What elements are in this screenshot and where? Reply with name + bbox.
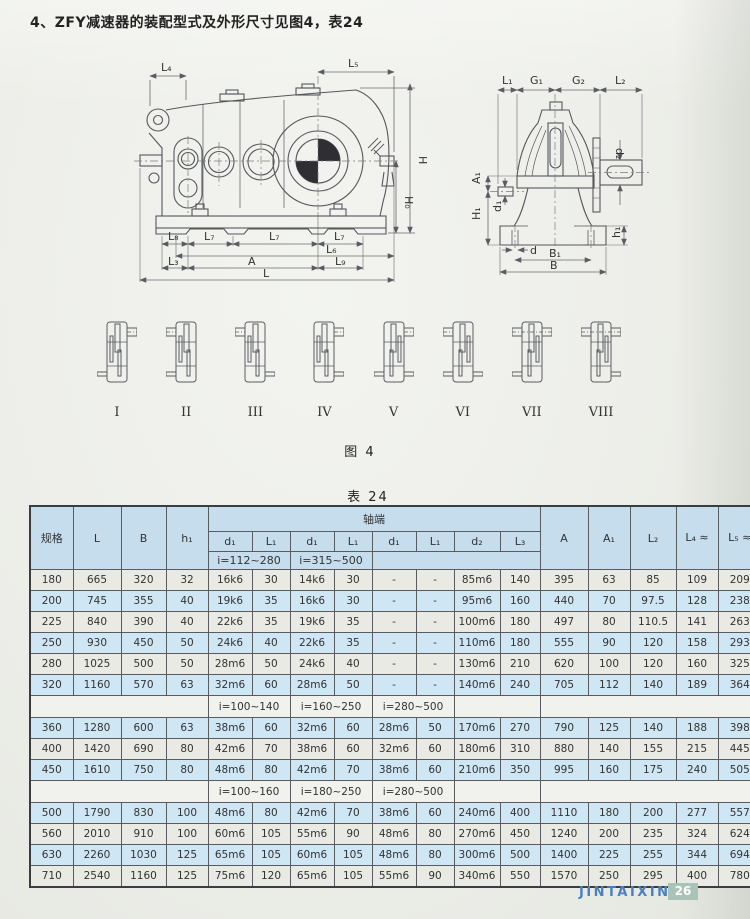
assembly-type-1-diagram — [97, 320, 137, 392]
page-title: 4、ZFY减速器的装配型式及外形尺寸见图4，表24 — [30, 12, 363, 32]
table-cell: 70 — [334, 760, 372, 781]
col-header-L1a: L₁ — [252, 532, 290, 552]
assembly-type-3-diagram — [235, 320, 275, 392]
table-cell: 120 — [252, 866, 290, 888]
assembly-type-5-diagram — [374, 320, 414, 392]
table-cell: 235 — [630, 824, 676, 845]
table-cell: 30 — [334, 591, 372, 612]
table-cell: 690 — [121, 739, 166, 760]
col-header-shaft-end: 轴端 — [208, 506, 540, 532]
table-cell: - — [372, 612, 416, 633]
table-cell: 180 — [500, 612, 540, 633]
i-range-label: i=180~250 — [290, 781, 372, 803]
table-cell: 42m6 — [290, 803, 334, 824]
col-header-spec: 规格 — [30, 506, 73, 570]
table-row: 2007453554019k63516k630--95m61604407097.… — [30, 591, 750, 612]
dim-label-L5: L₅ — [348, 57, 359, 70]
table-cell: 250 — [30, 633, 73, 654]
table-cell: 910 — [121, 824, 166, 845]
table-row: 7102540116012575m612065m610555m690340m65… — [30, 866, 750, 888]
table-cell: 155 — [630, 739, 676, 760]
table-cell: 705 — [540, 675, 588, 696]
table-row: 45016107508048m68042m67038m660210m635099… — [30, 760, 750, 781]
table-cell: 270m6 — [454, 824, 500, 845]
table-cell: 1790 — [73, 803, 121, 824]
table-cell: 277 — [676, 803, 718, 824]
table-cell: 1160 — [121, 866, 166, 888]
side-view-drawing: L₄ L₅ H H₀ L₈ L₇ L₇ L₇ L₆ L₃ A L₉ L — [128, 56, 454, 298]
table-cell: - — [372, 591, 416, 612]
i-range-header-blank — [372, 552, 540, 570]
table-cell: 240 — [676, 760, 718, 781]
table-cell: 95m6 — [454, 591, 500, 612]
table-cell: 38m6 — [372, 803, 416, 824]
table-row: 560201091010060m610555m69048m680270m6450… — [30, 824, 750, 845]
table-cell: 210m6 — [454, 760, 500, 781]
table-cell: 100m6 — [454, 612, 500, 633]
i-range-label: i=100~160 — [208, 781, 290, 803]
table-cell: 344 — [676, 845, 718, 866]
table-cell: 745 — [73, 591, 121, 612]
table-cell: 180 — [30, 570, 73, 591]
table-cell: 16k6 — [290, 591, 334, 612]
assembly-type-1: I — [95, 320, 139, 420]
table-cell: 255 — [630, 845, 676, 866]
table-cell: - — [372, 633, 416, 654]
figure-caption: 图 4 — [320, 441, 400, 460]
table-cell: 790 — [540, 718, 588, 739]
table-cell: 364 — [718, 675, 750, 696]
table-cell: 200 — [30, 591, 73, 612]
table-body: 1806653203216k63014k630--85m614039563851… — [30, 570, 750, 888]
table-cell: 60 — [252, 718, 290, 739]
dim-label-h1: h₁ — [610, 227, 623, 238]
table-cell: 160 — [676, 654, 718, 675]
table-cell: 97.5 — [630, 591, 676, 612]
end-view-drawing: L₁ G₁ G₂ L₂ d₂ A₁ H₁ d₁ h₁ d B₁ B — [468, 60, 744, 298]
table-cell: 355 — [121, 591, 166, 612]
table-cell: 38m6 — [290, 739, 334, 760]
table-cell: 400 — [30, 739, 73, 760]
table-cell: 158 — [676, 633, 718, 654]
table-cell: 390 — [121, 612, 166, 633]
table-cell: 14k6 — [290, 570, 334, 591]
table-cell: 125 — [166, 845, 208, 866]
table-cell: 50 — [416, 718, 454, 739]
table-cell: 2010 — [73, 824, 121, 845]
assembly-type-8-diagram — [581, 320, 621, 392]
table-cell: 1280 — [73, 718, 121, 739]
footer-brand: JINTAIXIN — [579, 885, 671, 900]
table-cell: 238 — [718, 591, 750, 612]
table-cell: 160 — [588, 760, 630, 781]
footer-page-number: 26 — [668, 883, 698, 900]
table-cell: 40 — [166, 612, 208, 633]
table-cell: 80 — [166, 760, 208, 781]
table-cell: 440 — [540, 591, 588, 612]
table-header: 规格 L B h₁ 轴端 A A₁ L₂ L₄ ≈ L₅ ≈ d₁ L₁ d₁ … — [30, 506, 750, 570]
table-cell: 600 — [121, 718, 166, 739]
table-cell: 24k6 — [290, 654, 334, 675]
table-cell: 325 — [718, 654, 750, 675]
table-cell: 995 — [540, 760, 588, 781]
dim-label-L3: L₃ — [168, 255, 179, 268]
assembly-type-5-label: V — [389, 405, 398, 420]
table-cell: 35 — [334, 633, 372, 654]
assembly-type-5: V — [372, 320, 416, 420]
dim-label-L: L — [263, 267, 270, 280]
table-cell: 175 — [630, 760, 676, 781]
assembly-type-2-label: II — [181, 405, 191, 420]
assembly-type-4: IV — [302, 320, 346, 420]
table-cell: 270 — [500, 718, 540, 739]
table-cell: 48m6 — [208, 760, 252, 781]
i-range-label: i=280~500 — [372, 696, 454, 718]
table-cell: 620 — [540, 654, 588, 675]
table-cell: 320 — [30, 675, 73, 696]
dim-label-L2: L₂ — [615, 74, 626, 87]
table-cell: 40 — [166, 591, 208, 612]
table-cell: 2260 — [73, 845, 121, 866]
table-cell: 32m6 — [208, 675, 252, 696]
table-cell: 40 — [252, 633, 290, 654]
table-row: 500179083010048m68042m67038m660240m64001… — [30, 803, 750, 824]
i-range-header-1: i=112~280 — [208, 552, 290, 570]
table-cell: - — [372, 570, 416, 591]
assembly-type-1-label: I — [114, 405, 119, 420]
table-cell: 60 — [252, 675, 290, 696]
table-cell: 110.5 — [630, 612, 676, 633]
table-cell: 350 — [500, 760, 540, 781]
table-cell: 40 — [334, 654, 372, 675]
assembly-type-8-label: VIII — [589, 405, 614, 420]
table-cell: 80 — [166, 739, 208, 760]
table-cell: 840 — [73, 612, 121, 633]
col-header-B: B — [121, 506, 166, 570]
table-cell: 250 — [588, 866, 630, 888]
table-cell: 60m6 — [290, 845, 334, 866]
assembly-type-6-label: VI — [455, 405, 470, 420]
table-cell: 70 — [588, 591, 630, 612]
table-row: 28010255005028m65024k640--130m6210620100… — [30, 654, 750, 675]
empty-cell — [30, 696, 208, 718]
table-cell: 32m6 — [372, 739, 416, 760]
table-cell: 500 — [121, 654, 166, 675]
i-range-row: i=100~140i=160~250i=280~500 — [30, 696, 750, 718]
table-cell: 140 — [500, 570, 540, 591]
assembly-type-3: III — [233, 320, 277, 420]
table-cell: 750 — [121, 760, 166, 781]
table-cell: - — [416, 591, 454, 612]
table-cell: 50 — [334, 675, 372, 696]
table-cell: 1570 — [540, 866, 588, 888]
table-cell: 1110 — [540, 803, 588, 824]
table-cell: 48m6 — [208, 803, 252, 824]
assembly-type-6-diagram — [443, 320, 483, 392]
table-cell: 30 — [334, 570, 372, 591]
table-cell: 63 — [166, 675, 208, 696]
table-cell: 500 — [30, 803, 73, 824]
table-cell: 300m6 — [454, 845, 500, 866]
table-cell: 63 — [588, 570, 630, 591]
table-cell: 710 — [30, 866, 73, 888]
table-cell: 160 — [500, 591, 540, 612]
empty-cell — [454, 781, 540, 803]
table-cell: 50 — [166, 654, 208, 675]
table-cell: 170m6 — [454, 718, 500, 739]
table-cell: 80 — [416, 824, 454, 845]
table-cell: 65m6 — [290, 866, 334, 888]
table-cell: 324 — [676, 824, 718, 845]
table-cell: 140 — [588, 739, 630, 760]
table-cell: 63 — [166, 718, 208, 739]
table-cell: 105 — [252, 824, 290, 845]
table-cell: 555 — [540, 633, 588, 654]
dimension-table: 规格 L B h₁ 轴端 A A₁ L₂ L₄ ≈ L₅ ≈ d₁ L₁ d₁ … — [29, 505, 750, 888]
table-cell: 225 — [588, 845, 630, 866]
col-header-L3: L₃ — [500, 532, 540, 552]
table-cell: 263 — [718, 612, 750, 633]
table-cell: 28m6 — [372, 718, 416, 739]
assembly-type-2: II — [164, 320, 208, 420]
table-cell: 665 — [73, 570, 121, 591]
table-cell: 24k6 — [208, 633, 252, 654]
table-cell: 120 — [630, 633, 676, 654]
table-cell: 180m6 — [454, 739, 500, 760]
table-cell: 570 — [121, 675, 166, 696]
table-cell: 398 — [718, 718, 750, 739]
table-cell: 42m6 — [208, 739, 252, 760]
table-cell: 180 — [588, 803, 630, 824]
table-cell: 310 — [500, 739, 540, 760]
table-cell: 85 — [630, 570, 676, 591]
dim-label-L8: L₈ — [168, 230, 179, 243]
table-cell: 100 — [588, 654, 630, 675]
dim-label-L1: L₁ — [502, 74, 513, 87]
dim-label-H: H — [416, 156, 429, 164]
table-cell: 105 — [252, 845, 290, 866]
table-cell: 105 — [334, 845, 372, 866]
table-cell: 210 — [500, 654, 540, 675]
table-cell: 30 — [252, 570, 290, 591]
table-cell: 90 — [416, 866, 454, 888]
table-cell: 80 — [252, 760, 290, 781]
dim-label-L9: L₉ — [335, 255, 346, 268]
table-cell: 22k6 — [290, 633, 334, 654]
table-cell: 60m6 — [208, 824, 252, 845]
table-cell: 1610 — [73, 760, 121, 781]
col-header-A1: A₁ — [588, 506, 630, 570]
table-cell: 109 — [676, 570, 718, 591]
table-cell: 128 — [676, 591, 718, 612]
table-cell: 2540 — [73, 866, 121, 888]
i-range-label: i=160~250 — [290, 696, 372, 718]
table-cell: 225 — [30, 612, 73, 633]
table-row: 36012806006338m66032m66028m650170m627079… — [30, 718, 750, 739]
col-header-L: L — [73, 506, 121, 570]
table-cell: 60 — [416, 739, 454, 760]
table-cell: 1240 — [540, 824, 588, 845]
table-cell: 50 — [252, 654, 290, 675]
table-cell: 240 — [500, 675, 540, 696]
table-cell: 188 — [676, 718, 718, 739]
table-cell: 500 — [500, 845, 540, 866]
col-header-d1c: d₁ — [372, 532, 416, 552]
dimension-table-wrap: 规格 L B h₁ 轴端 A A₁ L₂ L₄ ≈ L₅ ≈ d₁ L₁ d₁ … — [29, 505, 750, 888]
dim-label-d1: d₁ — [491, 201, 504, 212]
assembly-type-4-label: IV — [317, 405, 332, 420]
table-cell: 90 — [334, 824, 372, 845]
table-cell: 75m6 — [208, 866, 252, 888]
table-cell: 200 — [588, 824, 630, 845]
table-cell: 80 — [588, 612, 630, 633]
table-row: 40014206908042m67038m66032m660180m631088… — [30, 739, 750, 760]
table-cell: 19k6 — [290, 612, 334, 633]
table-cell: 140m6 — [454, 675, 500, 696]
table-cell: 105 — [334, 866, 372, 888]
table-cell: 70 — [334, 803, 372, 824]
i-range-label: i=100~140 — [208, 696, 290, 718]
assembly-types-row: I II — [95, 320, 623, 420]
table-cell: 28m6 — [208, 654, 252, 675]
col-header-L5: L₅ ≈ — [718, 506, 750, 570]
table-cell: 497 — [540, 612, 588, 633]
i-range-header-2: i=315~500 — [290, 552, 372, 570]
table-cell: 22k6 — [208, 612, 252, 633]
empty-cell — [30, 781, 208, 803]
table-cell: 60 — [334, 739, 372, 760]
assembly-type-7: VII — [510, 320, 554, 420]
col-header-L4: L₄ ≈ — [676, 506, 718, 570]
table-cell: 450 — [500, 824, 540, 845]
table-cell: 560 — [30, 824, 73, 845]
table-row: 1806653203216k63014k630--85m614039563851… — [30, 570, 750, 591]
table-cell: 80 — [252, 803, 290, 824]
dim-label-d: d — [530, 244, 537, 257]
table-cell: 112 — [588, 675, 630, 696]
assembly-type-4-diagram — [304, 320, 344, 392]
table-cell: 880 — [540, 739, 588, 760]
empty-cell — [454, 696, 540, 718]
table-row: 32011605706332m66028m650--140m6240705112… — [30, 675, 750, 696]
col-header-L2: L₂ — [630, 506, 676, 570]
table-cell: 65m6 — [208, 845, 252, 866]
table-cell: 1025 — [73, 654, 121, 675]
table-cell: 450 — [121, 633, 166, 654]
table-row: 2258403904022k63519k635--100m61804978011… — [30, 612, 750, 633]
table-cell: 38m6 — [372, 760, 416, 781]
table-cell: 200 — [630, 803, 676, 824]
dim-label-d2: d₂ — [613, 148, 626, 159]
table-cell: 50 — [166, 633, 208, 654]
assembly-type-2-diagram — [166, 320, 206, 392]
dim-label-B: B — [550, 259, 558, 272]
table-cell: 90 — [588, 633, 630, 654]
table-cell: 35 — [252, 591, 290, 612]
table-cell: - — [416, 675, 454, 696]
table-cell: 100 — [166, 803, 208, 824]
assembly-type-3-label: III — [248, 405, 263, 420]
table-cell: 395 — [540, 570, 588, 591]
table-cell: 930 — [73, 633, 121, 654]
table-cell: 694 — [718, 845, 750, 866]
table-cell: 780 — [718, 866, 750, 888]
table-cell: 240m6 — [454, 803, 500, 824]
table-cell: 209 — [718, 570, 750, 591]
dim-label-L7b: L₇ — [269, 230, 280, 243]
table-cell: 60 — [416, 803, 454, 824]
assembly-type-7-diagram — [512, 320, 552, 392]
table-cell: 505 — [718, 760, 750, 781]
table-cell: 85m6 — [454, 570, 500, 591]
empty-cell — [540, 696, 750, 718]
table-cell: 630 — [30, 845, 73, 866]
table-cell: 1030 — [121, 845, 166, 866]
table-cell: 35 — [334, 612, 372, 633]
dim-label-L7c: L₇ — [334, 230, 345, 243]
table-cell: 624 — [718, 824, 750, 845]
table-cell: 400 — [500, 803, 540, 824]
dim-label-L7a: L₇ — [204, 230, 215, 243]
table-cell: 180 — [500, 633, 540, 654]
table-cell: 550 — [500, 866, 540, 888]
i-range-label: i=280~500 — [372, 781, 454, 803]
col-header-d1b: d₁ — [290, 532, 334, 552]
table-cell: 35 — [252, 612, 290, 633]
table-cell: - — [372, 654, 416, 675]
col-header-d1a: d₁ — [208, 532, 252, 552]
i-range-row: i=100~160i=180~250i=280~500 — [30, 781, 750, 803]
table-cell: 80 — [416, 845, 454, 866]
table-cell: 125 — [166, 866, 208, 888]
col-header-L1b: L₁ — [334, 532, 372, 552]
table-cell: 130m6 — [454, 654, 500, 675]
table-cell: 320 — [121, 570, 166, 591]
table-cell: 70 — [252, 739, 290, 760]
table-cell: 293 — [718, 633, 750, 654]
dim-label-A: A — [248, 255, 256, 268]
table-cell: - — [416, 633, 454, 654]
empty-cell — [540, 781, 750, 803]
table-caption: 表 24 — [328, 486, 408, 505]
table-cell: 32m6 — [290, 718, 334, 739]
table-cell: 340m6 — [454, 866, 500, 888]
table-cell: 32 — [166, 570, 208, 591]
table-cell: 215 — [676, 739, 718, 760]
assembly-type-6: VI — [441, 320, 485, 420]
table-cell: 38m6 — [208, 718, 252, 739]
table-cell: 28m6 — [290, 675, 334, 696]
assembly-type-7-label: VII — [522, 405, 542, 420]
table-cell: 360 — [30, 718, 73, 739]
table-cell: 557 — [718, 803, 750, 824]
table-cell: 60 — [416, 760, 454, 781]
table-cell: 450 — [30, 760, 73, 781]
table-cell: 120 — [630, 654, 676, 675]
table-cell: 141 — [676, 612, 718, 633]
table-cell: 55m6 — [372, 866, 416, 888]
table-cell: 48m6 — [372, 824, 416, 845]
table-cell: 189 — [676, 675, 718, 696]
col-header-L1c: L₁ — [416, 532, 454, 552]
table-cell: 55m6 — [290, 824, 334, 845]
table-cell: 1160 — [73, 675, 121, 696]
table-cell: 1420 — [73, 739, 121, 760]
col-header-h1: h₁ — [166, 506, 208, 570]
table-cell: - — [416, 654, 454, 675]
assembly-type-8: VIII — [579, 320, 623, 420]
table-cell: 280 — [30, 654, 73, 675]
